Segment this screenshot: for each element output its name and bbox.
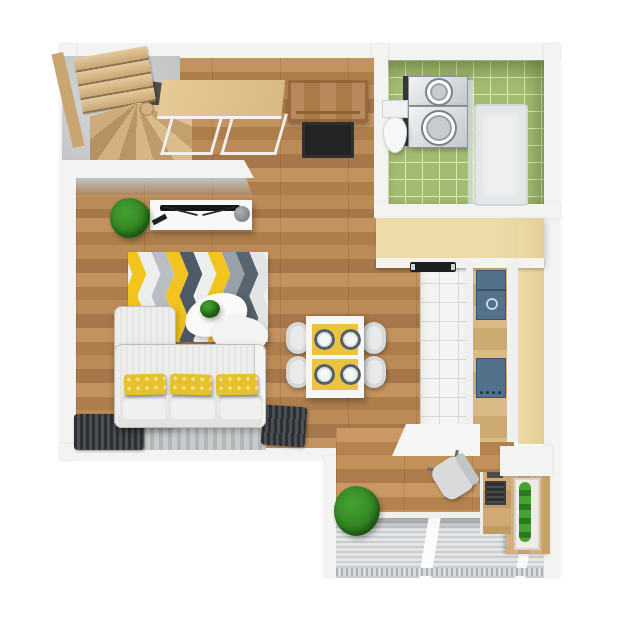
planter-plants xyxy=(519,482,531,542)
console-table-leg xyxy=(220,114,288,155)
kitchen-counter-right xyxy=(518,222,544,444)
yellow-pillow xyxy=(170,373,213,395)
dryer-door xyxy=(427,80,451,104)
window-curtain xyxy=(261,405,308,448)
stair-newel-post xyxy=(140,102,154,116)
kitchen-worktop-edge xyxy=(507,262,518,442)
dining-chair xyxy=(362,356,386,388)
washer-dryer-stack xyxy=(408,76,466,146)
balcony-railing xyxy=(336,568,544,576)
plate xyxy=(340,364,361,385)
kitchen-tile-floor xyxy=(420,264,470,442)
console-table xyxy=(157,80,285,119)
shower-glass-panel xyxy=(468,80,472,204)
doormat xyxy=(302,122,354,158)
plate xyxy=(340,329,361,350)
tv-partition-wall xyxy=(60,160,254,178)
yellow-pillow xyxy=(124,373,167,395)
faucet xyxy=(486,298,498,310)
cooktop xyxy=(410,262,456,272)
kitchen-sink xyxy=(476,270,504,318)
toilet-tank xyxy=(382,100,408,118)
seat-cushion xyxy=(170,395,216,419)
floor-plan xyxy=(0,0,640,640)
shower-enclosure xyxy=(474,104,528,206)
plate xyxy=(314,364,335,385)
entry-door xyxy=(288,80,368,122)
washer-door xyxy=(423,112,455,144)
kitchen-counter-edge xyxy=(376,258,544,268)
plate xyxy=(314,329,335,350)
tv-wall-face xyxy=(76,178,254,198)
wall-bathroom-bottom xyxy=(372,202,560,218)
keyboard xyxy=(485,481,506,505)
wall-workspace xyxy=(500,446,552,476)
yellow-pillow xyxy=(216,374,258,396)
seat-cushion xyxy=(219,395,263,419)
seat-cushion xyxy=(122,395,167,419)
kitchen-worktop-edge xyxy=(466,262,473,442)
dining-chair xyxy=(362,322,386,354)
tv xyxy=(160,205,240,211)
vertical-planter xyxy=(514,478,540,550)
hob xyxy=(476,358,506,398)
sink-basin xyxy=(476,270,506,290)
speaker xyxy=(234,206,250,222)
